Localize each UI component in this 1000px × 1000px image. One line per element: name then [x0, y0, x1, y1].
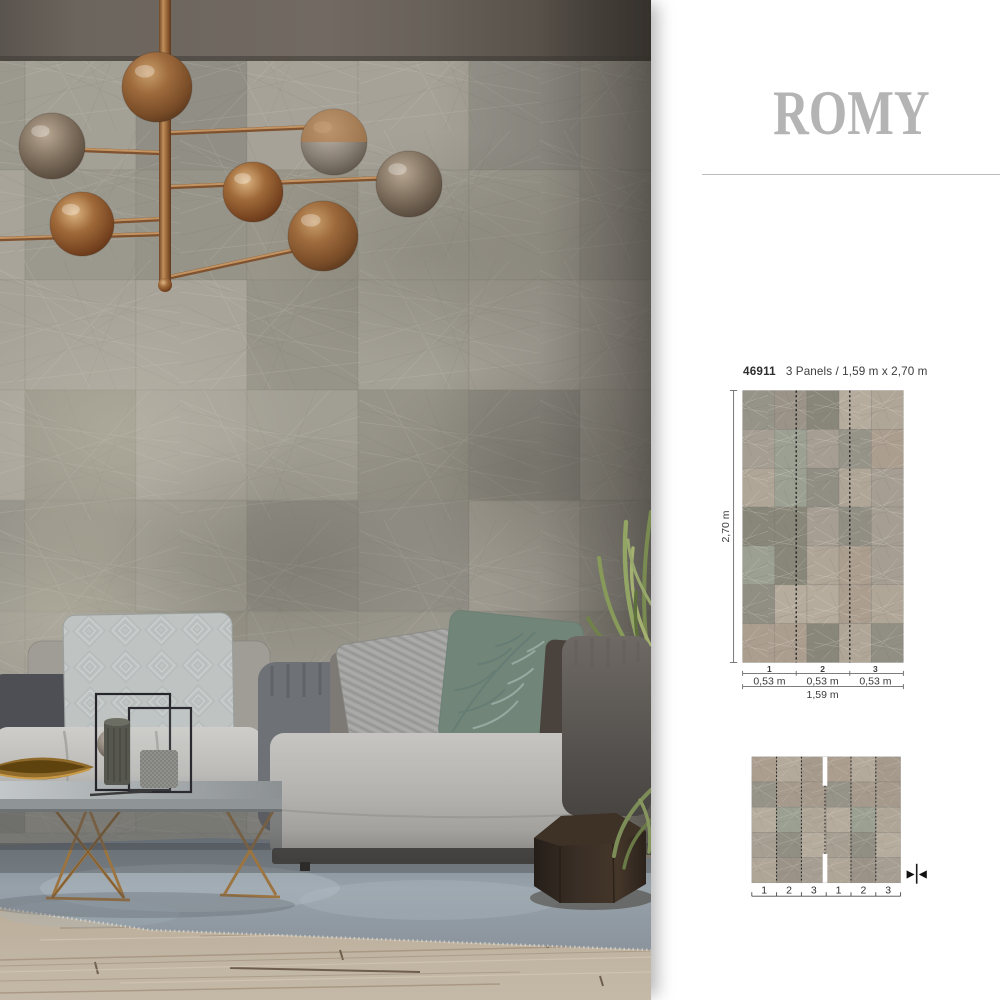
svg-text:0,53 m: 0,53 m	[753, 676, 785, 688]
svg-text:3: 3	[873, 664, 878, 674]
svg-text:3: 3	[811, 885, 817, 897]
svg-text:1,59 m: 1,59 m	[807, 689, 839, 701]
svg-text:2: 2	[820, 664, 825, 674]
svg-text:2,70 m: 2,70 m	[722, 510, 732, 542]
svg-text:2: 2	[786, 885, 792, 897]
svg-text:3: 3	[885, 885, 891, 897]
svg-text:0,53 m: 0,53 m	[859, 676, 891, 688]
svg-text:1: 1	[761, 885, 767, 897]
svg-text:2: 2	[860, 885, 866, 897]
svg-text:1: 1	[767, 664, 772, 674]
svg-text:0,53 m: 0,53 m	[807, 676, 839, 688]
svg-text:1: 1	[836, 885, 842, 897]
